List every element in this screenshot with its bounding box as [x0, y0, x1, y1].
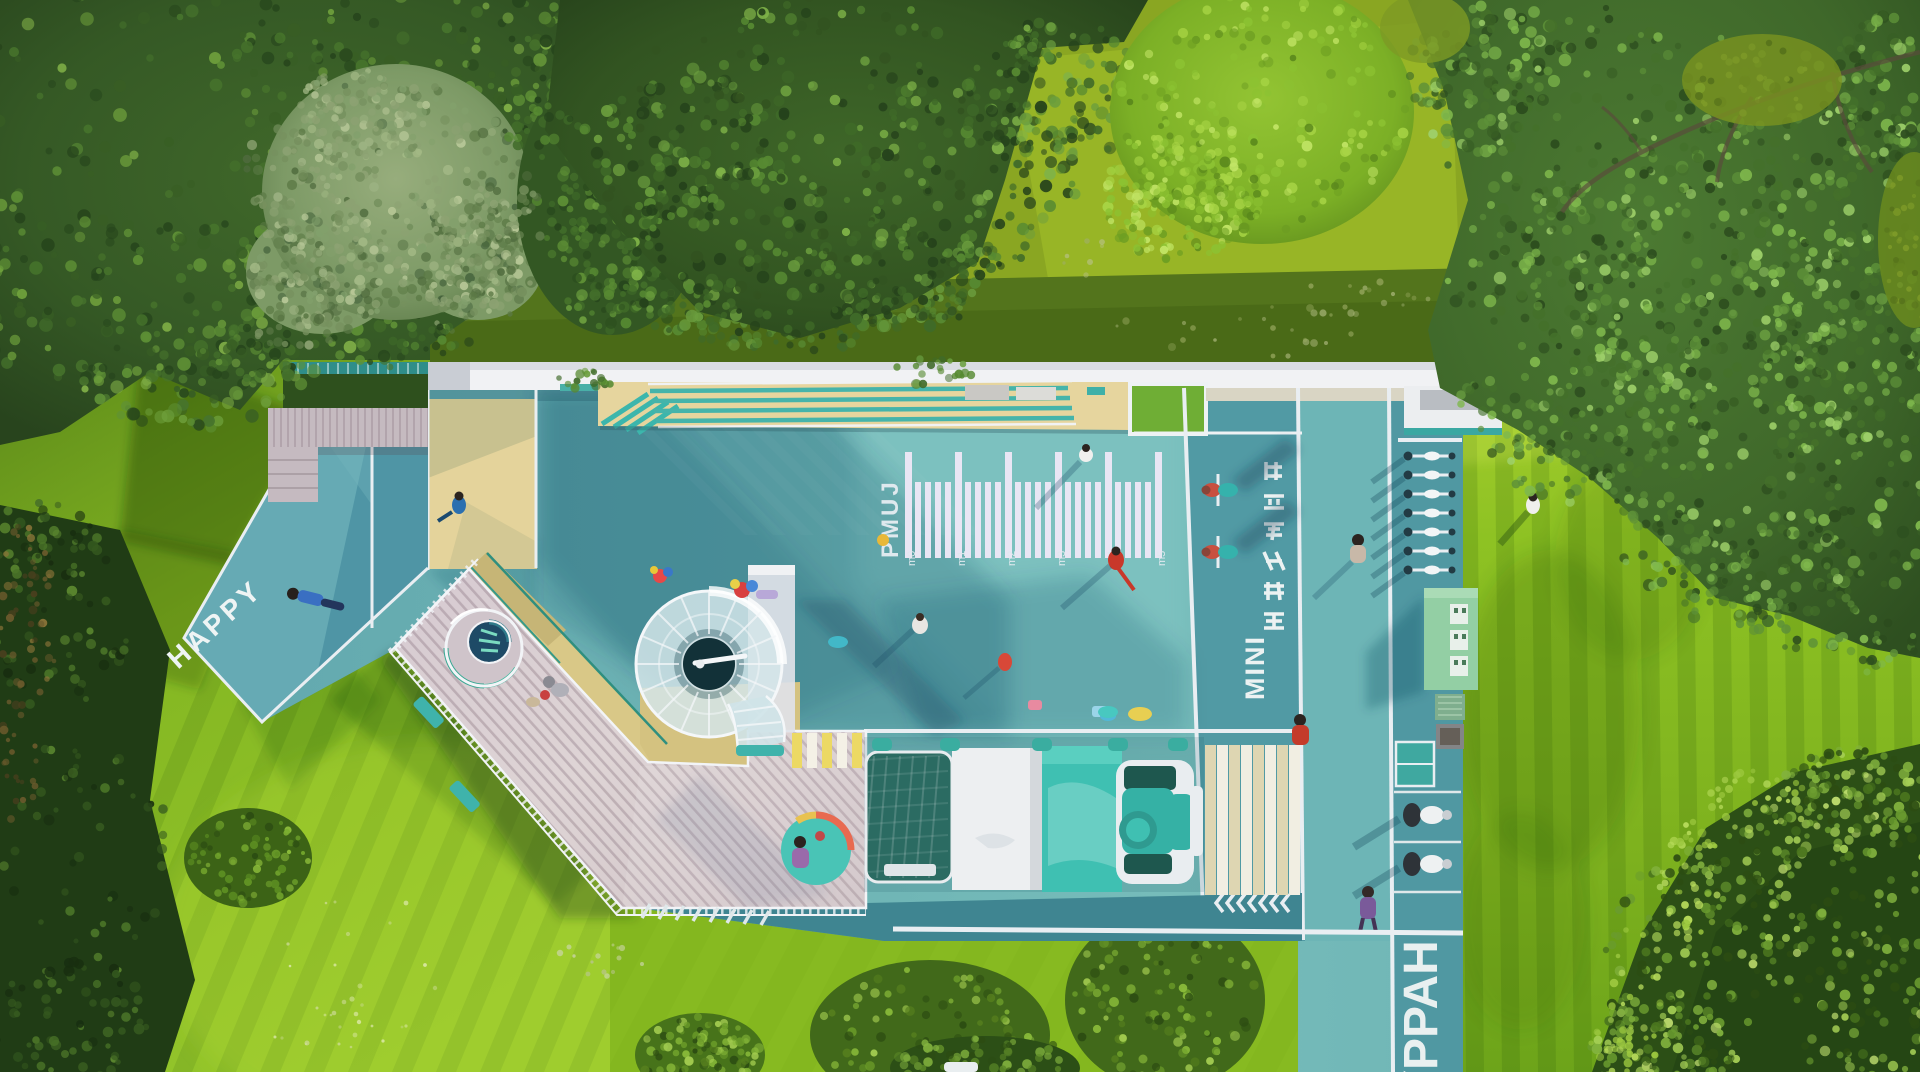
svg-text:PMUJ: PMUJ [877, 479, 904, 558]
svg-text:m1: m1 [956, 551, 968, 566]
svg-text:m0: m0 [906, 551, 918, 566]
svg-text:m5: m5 [1156, 551, 1168, 566]
svg-text:MINI: MINI [1240, 635, 1270, 700]
svg-text:YPPAH: YPPAH [1395, 940, 1448, 1072]
svg-text:m2: m2 [1006, 551, 1018, 566]
svg-text:m3: m3 [1056, 551, 1068, 566]
